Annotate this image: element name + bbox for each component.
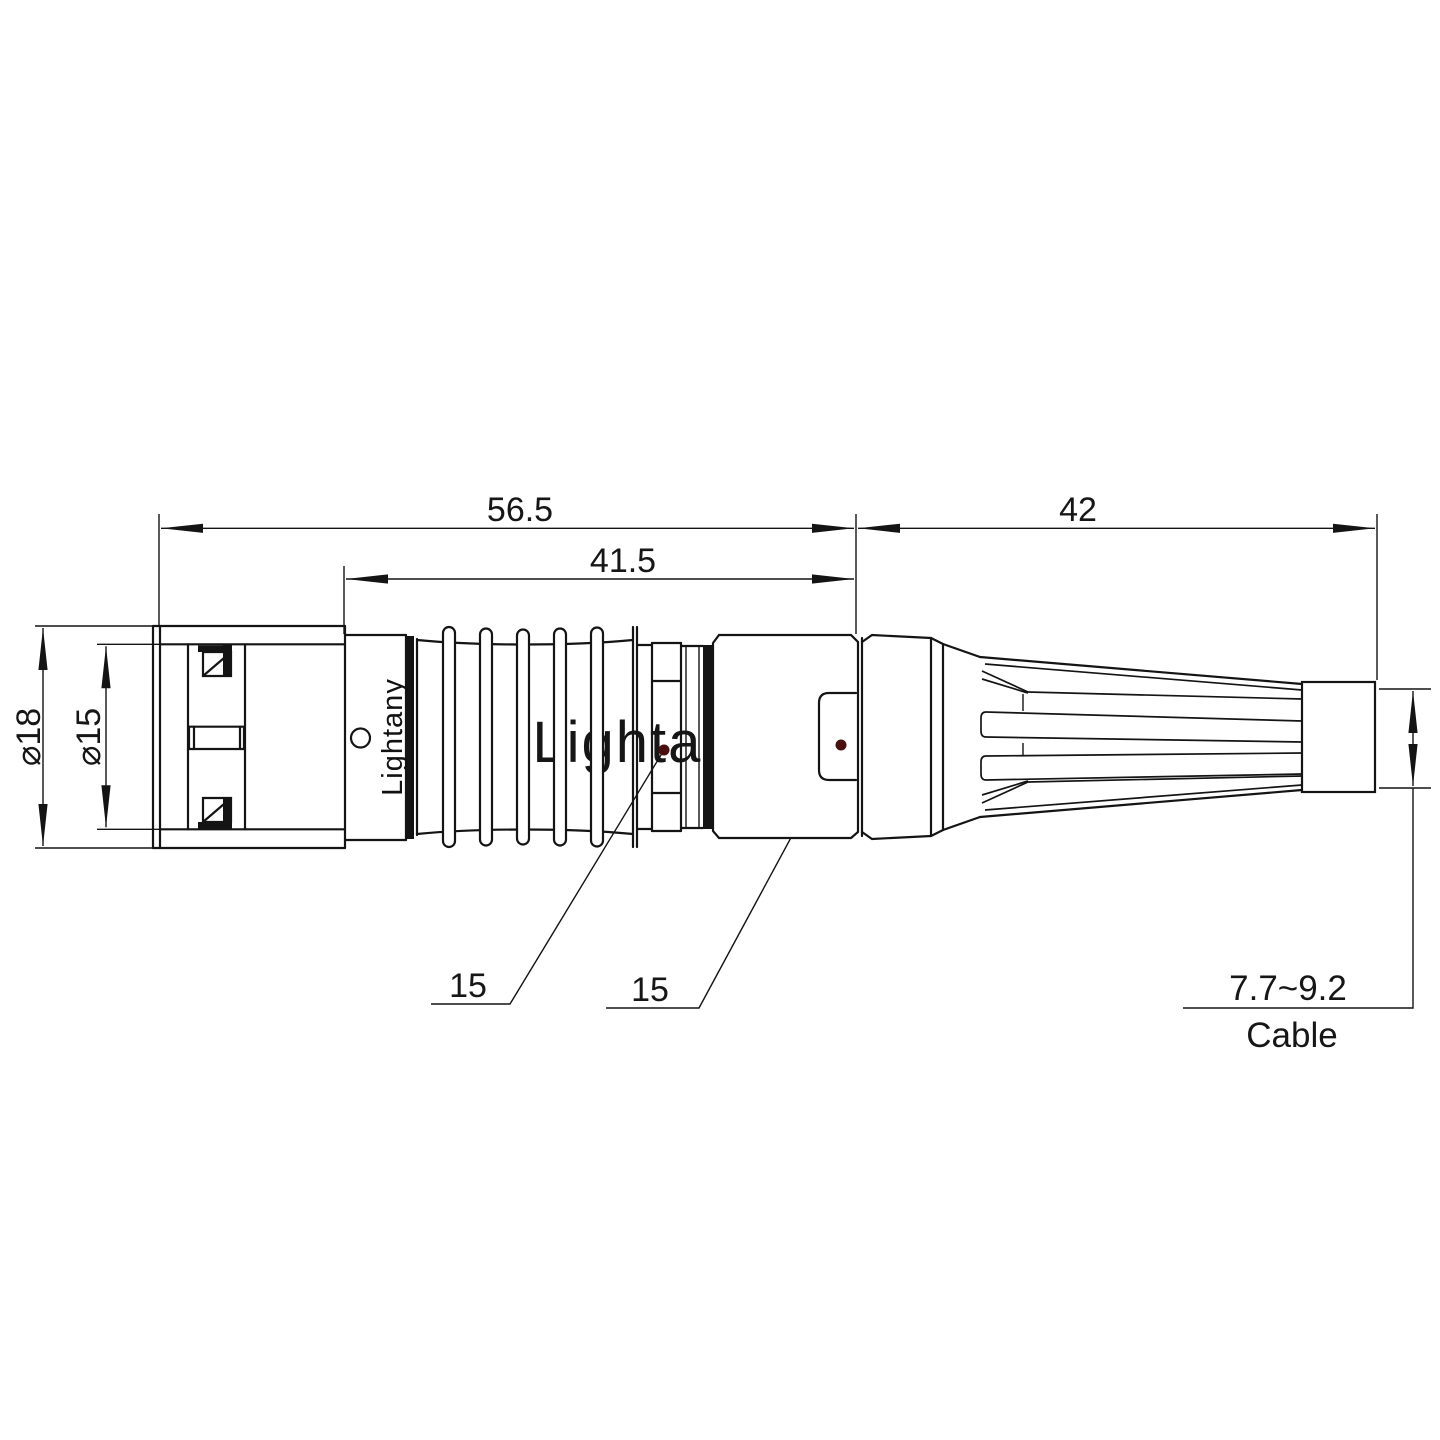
rear-housing: [713, 635, 858, 838]
drawing-canvas: Lightany: [0, 0, 1440, 1440]
dim-shell-diameter-label: ⌀18: [10, 708, 48, 766]
cable-exit-stub: [1302, 682, 1375, 792]
dim-cable-range-label: 7.7~9.2: [1229, 969, 1347, 1008]
cable-word-label: Cable: [1246, 1016, 1337, 1055]
body-logo-text: Lightany: [377, 678, 409, 796]
dim-boot-length-label: 42: [1059, 491, 1097, 529]
body-sleeve: Lightany: [345, 635, 414, 840]
latch-bottom: [198, 798, 232, 830]
dim-nut-width-rear-label: 15: [631, 971, 669, 1009]
dim-front-section-length-label: 41.5: [590, 542, 656, 580]
grip-rib-section: [417, 627, 637, 847]
dim-nut-width-front-label: 15: [449, 967, 487, 1005]
dim-coupling-diameter-label: ⌀15: [70, 708, 108, 766]
leader-dot-rear: [836, 740, 847, 751]
front-shell: [153, 626, 345, 848]
leader-dot-front: [659, 745, 670, 756]
connector-technical-drawing: Lightany: [0, 0, 1440, 1440]
strain-relief-boot: [862, 635, 1302, 839]
dim-overall-length-label: 56.5: [487, 491, 553, 529]
body-dimple-circle: [351, 729, 370, 748]
latch-top: [198, 644, 232, 676]
